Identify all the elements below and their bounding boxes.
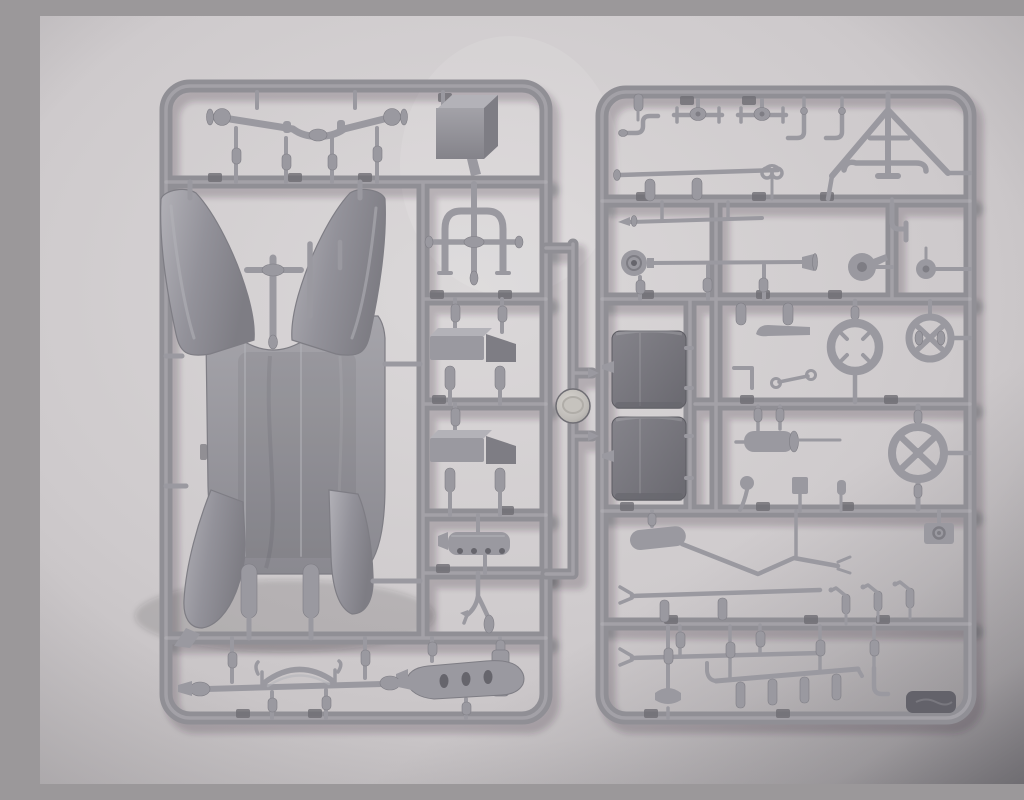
mold-disc <box>556 389 590 423</box>
fuel-tank-upper <box>602 331 692 409</box>
embossed-corner-tab <box>906 691 956 713</box>
model-kit-sprues-photo <box>40 16 1024 784</box>
fuel-tank-lower <box>602 417 692 501</box>
sprues-photo-canvas <box>40 16 1024 784</box>
